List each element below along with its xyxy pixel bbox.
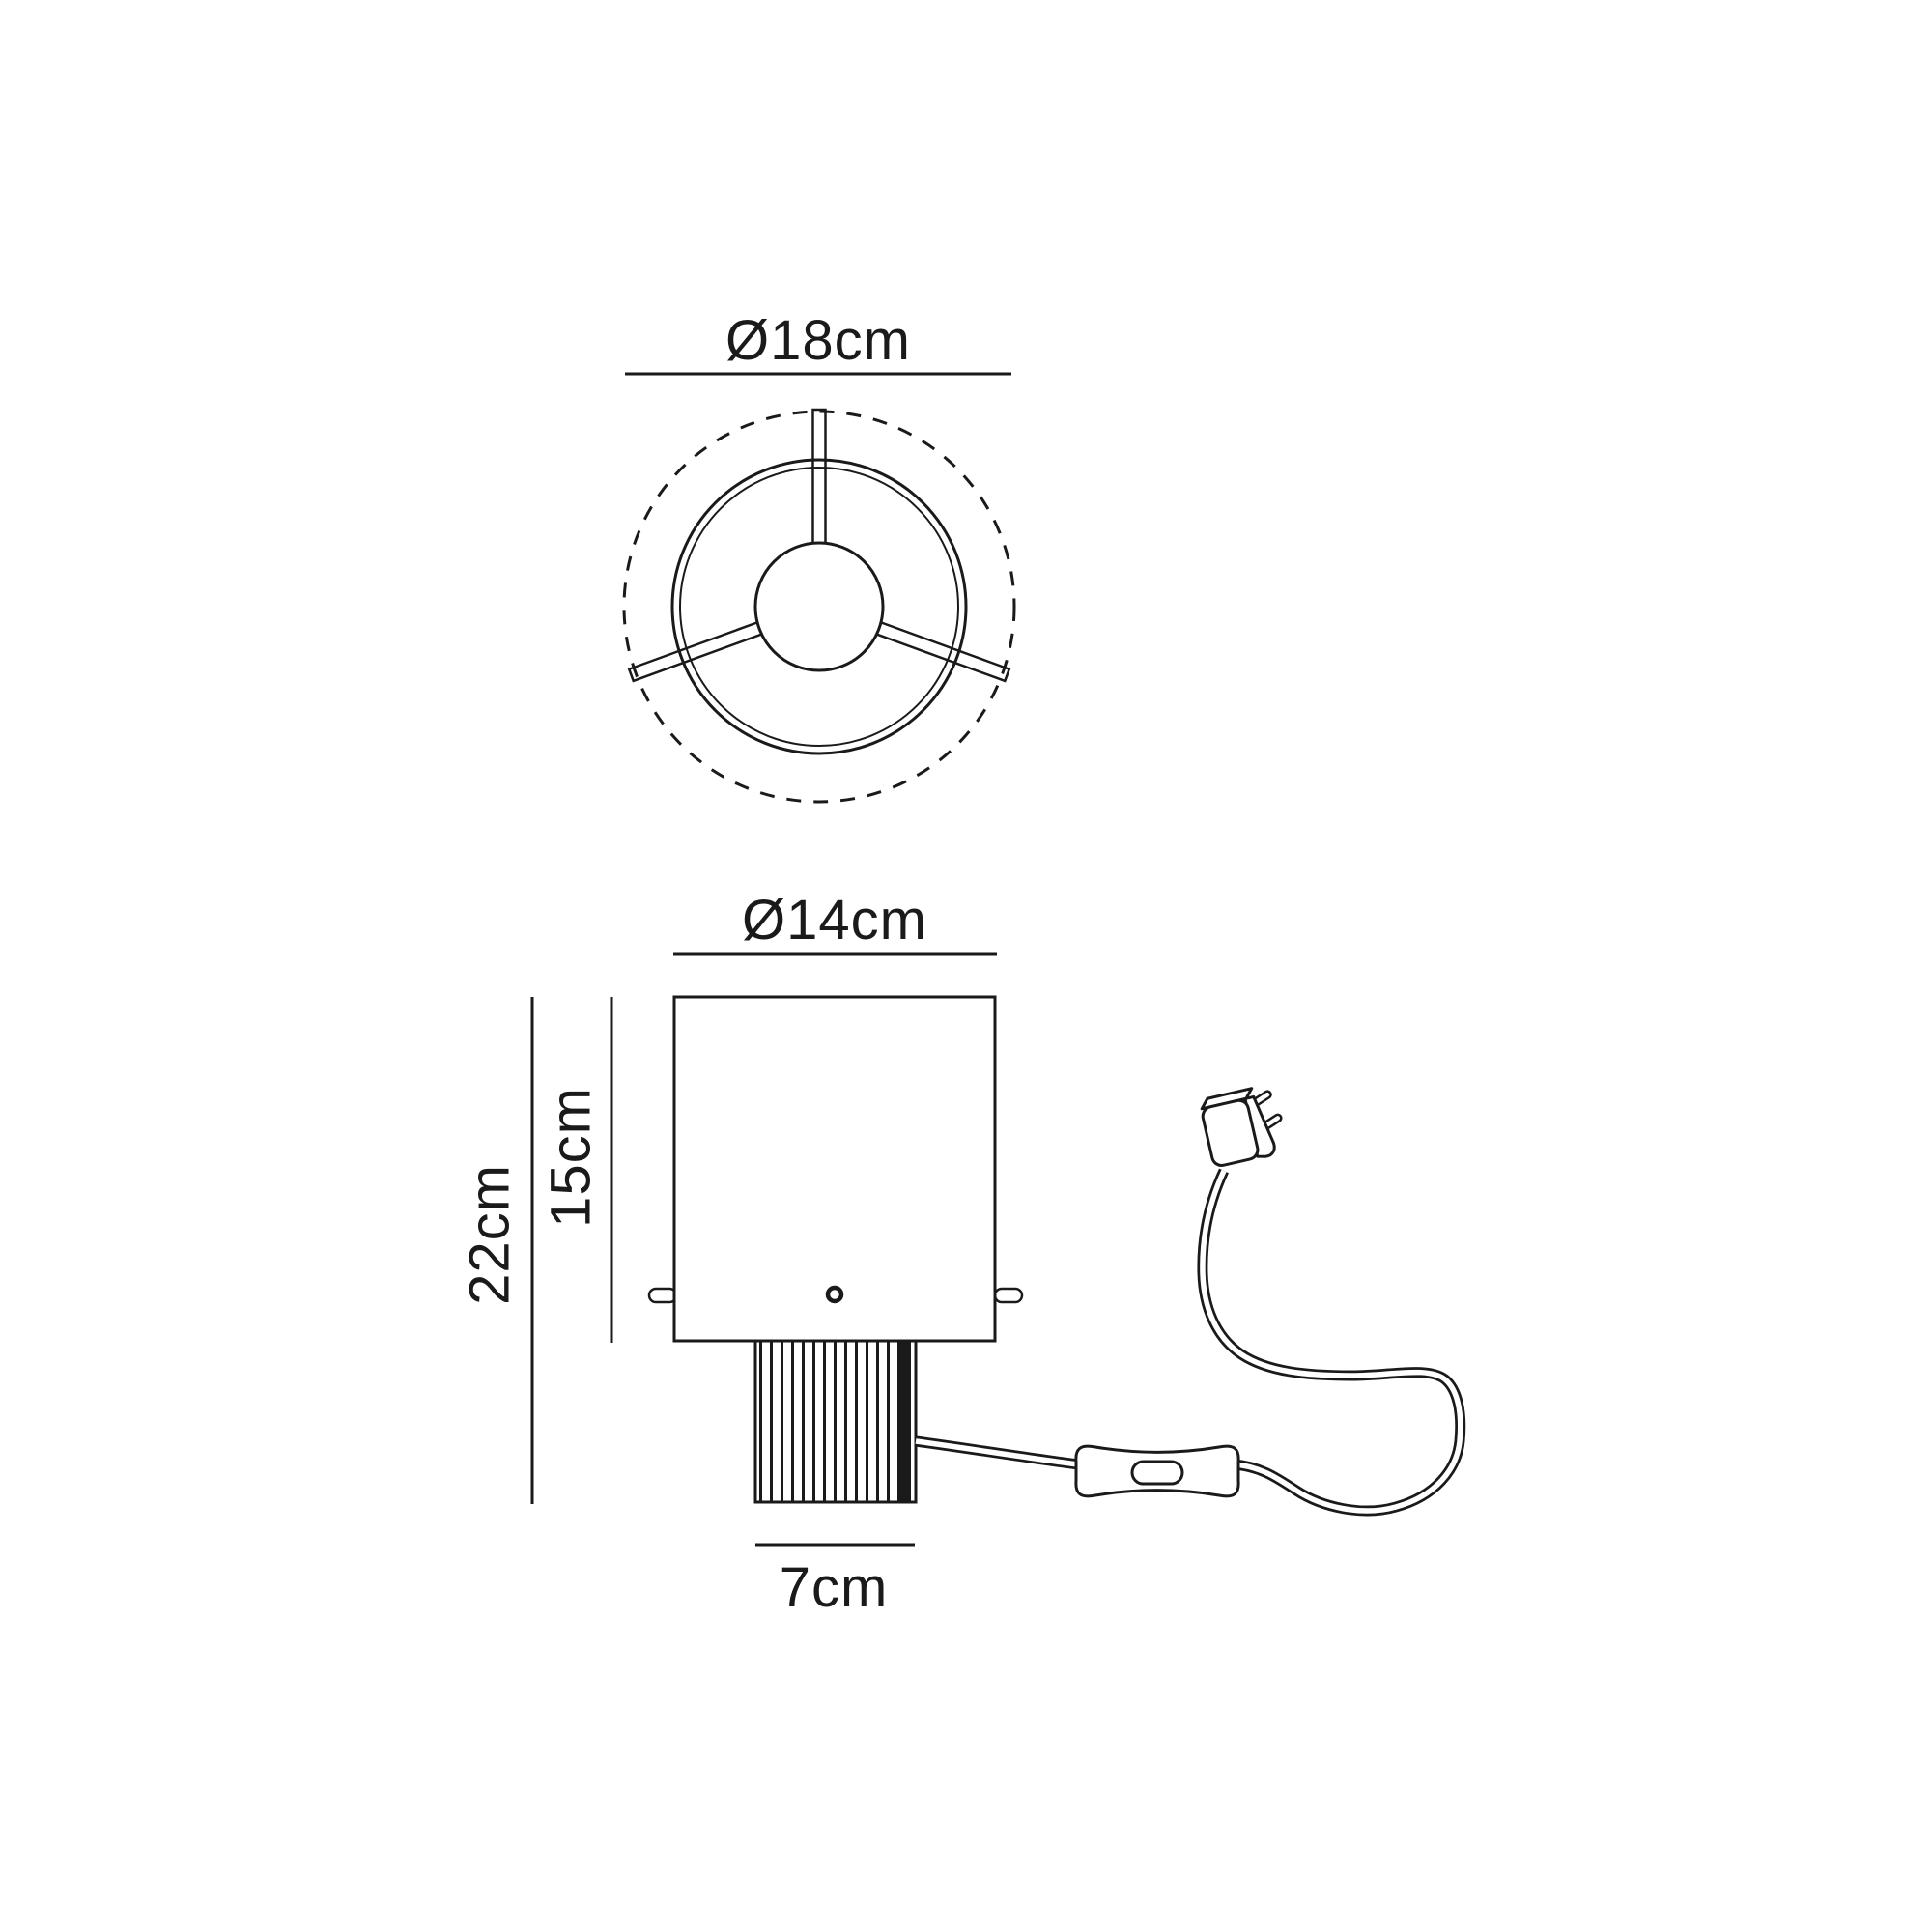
top-diameter-label: Ø18cm [725, 309, 911, 372]
base-shade-band [898, 1341, 911, 1502]
base-ribs [755, 1341, 916, 1502]
lamp-holder-hub [755, 543, 883, 670]
power-cord-base-segment [916, 1441, 1078, 1464]
spoke-top [813, 410, 826, 550]
uk-plug [1199, 1083, 1290, 1168]
shade-diameter-label: Ø14cm [742, 889, 927, 952]
ribbed-base [755, 1341, 916, 1502]
shade-fixing-hole [828, 1288, 841, 1301]
cord-assembly [916, 1083, 1461, 1511]
total-height-label: 22cm [458, 1164, 521, 1305]
peg-right [995, 1289, 1022, 1302]
lamp-dimension-diagram: Ø18cm Ø14cm [0, 0, 1932, 1932]
top-view: Ø18cm [624, 309, 1014, 802]
inline-switch [1076, 1446, 1238, 1496]
shade-height-label: 15cm [539, 1087, 602, 1228]
base-width-label: 7cm [780, 1556, 889, 1619]
spoke-lower-left [629, 619, 771, 681]
power-cord-plug-segment [1203, 1171, 1461, 1511]
switch-slider [1132, 1462, 1182, 1484]
spoke-lower-right [867, 619, 1009, 681]
peg-left [649, 1289, 676, 1302]
side-view: Ø14cm 7cm 22cm 15cm [458, 889, 1022, 1619]
